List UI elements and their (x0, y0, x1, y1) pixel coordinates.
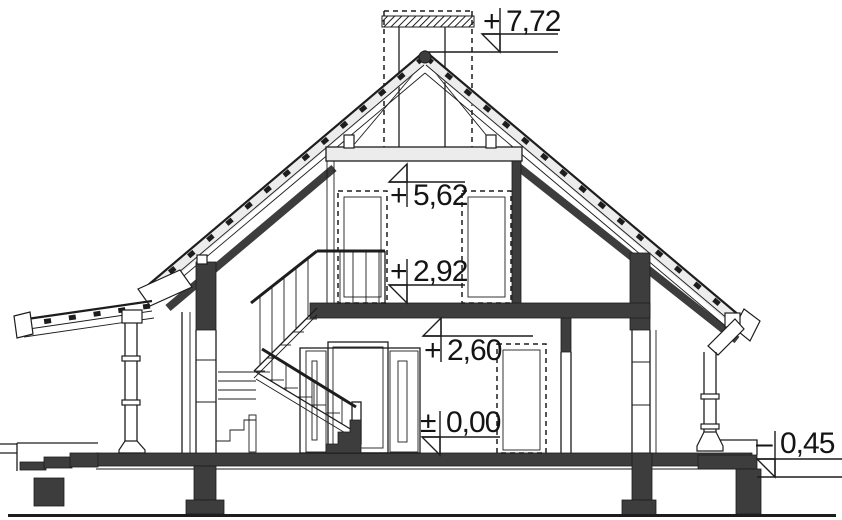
ridge-point (419, 51, 431, 63)
chimney-cap (382, 16, 474, 27)
right-downspout-shoe (697, 432, 723, 451)
left-step-footing (34, 478, 64, 506)
attic-floor-slab (310, 303, 650, 318)
collar-post-right (512, 161, 521, 303)
cross-section-drawing: + 7,72 + 5,62 + 2,92 + 2,60 ± 0,00 – 0,4… (0, 0, 842, 520)
elevation-sign: + (390, 179, 407, 212)
elevation-marker-chimney-top: + 7,72 (428, 5, 561, 52)
elevation-value: 0,45 (780, 427, 835, 460)
elevation-value: 0,00 (446, 406, 501, 439)
right-footing (622, 500, 656, 516)
roof-left-insulation (168, 168, 334, 308)
upper-flight-stringer (254, 308, 317, 371)
door-sidelight-right (390, 351, 418, 452)
elevation-sign: + (483, 5, 500, 38)
attic-door-left (338, 191, 387, 303)
elevation-marker-exterior-grade: – 0,45 (756, 427, 842, 477)
elevation-sign: ± (420, 406, 436, 439)
elevation-marker-ground-ceiling: + 2,60 (423, 318, 533, 367)
ground-line (8, 514, 836, 517)
left-downspout (119, 310, 145, 453)
door-sidelight-left (306, 351, 326, 452)
left-downspout-shoe (119, 441, 145, 453)
elevation-value: 2,92 (413, 255, 468, 288)
right-exterior-wall (630, 253, 656, 453)
elevation-marker-collar-ceiling: + 5,62 (389, 164, 468, 212)
roof-right-outer-edge (425, 51, 753, 327)
elevation-sign: – (756, 427, 773, 460)
house-section-svg: + 7,72 + 5,62 + 2,92 + 2,60 ± 0,00 – 0,4… (0, 0, 842, 520)
elevation-marker-attic-floor: + 2,92 (389, 255, 468, 303)
left-knee-wall (196, 262, 216, 330)
left-foundation-wall (194, 466, 216, 500)
left-annex-roof (14, 270, 192, 338)
elevation-value: 7,72 (506, 5, 561, 38)
interior-partition-wall (561, 318, 571, 453)
attic-door-right (462, 191, 511, 303)
right-foundation-wall (632, 453, 652, 500)
lower-flight-stringer (256, 372, 352, 430)
elevation-marker-ground-floor: ± 0,00 (420, 406, 501, 455)
interior-door-opening (497, 344, 546, 453)
elevation-sign: + (390, 255, 407, 288)
ground-slab (96, 453, 752, 466)
elevation-value: 2,60 (447, 334, 502, 367)
roof-left-battens (150, 58, 423, 289)
right-knee-wall (630, 253, 650, 330)
right-edge-foundation (736, 469, 761, 514)
left-gutter (14, 312, 33, 338)
left-footing (186, 500, 224, 514)
elevation-value: 5,62 (413, 179, 468, 212)
elevation-sign: + (424, 334, 441, 367)
